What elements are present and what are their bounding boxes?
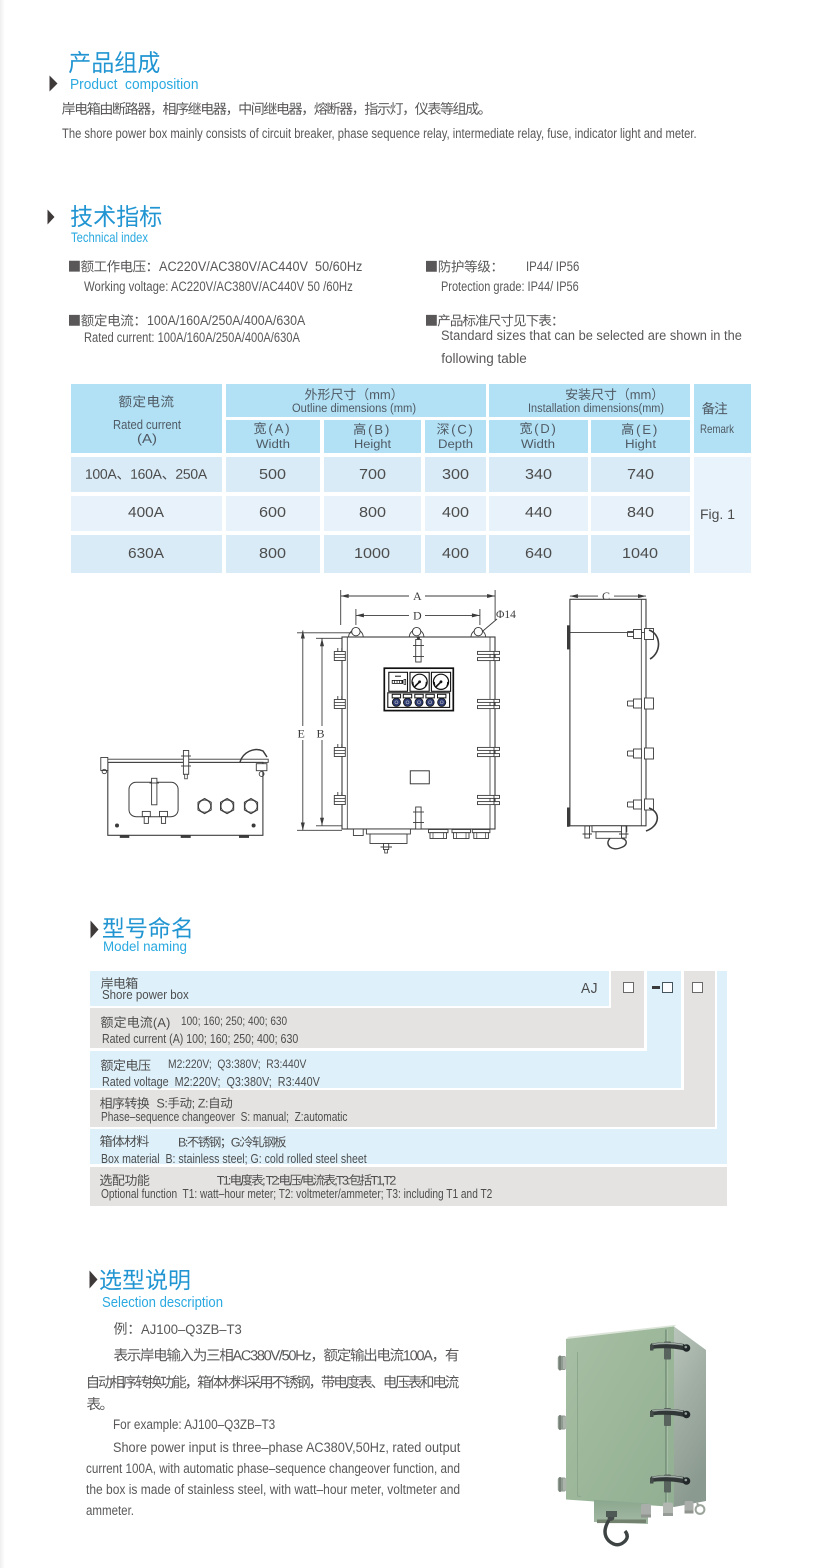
svg-text:Φ14: Φ14 bbox=[496, 609, 516, 621]
svg-text:A: A bbox=[413, 589, 422, 603]
svg-text:E: E bbox=[298, 727, 305, 741]
svg-text:D: D bbox=[413, 609, 422, 623]
svg-text:B: B bbox=[317, 727, 325, 741]
